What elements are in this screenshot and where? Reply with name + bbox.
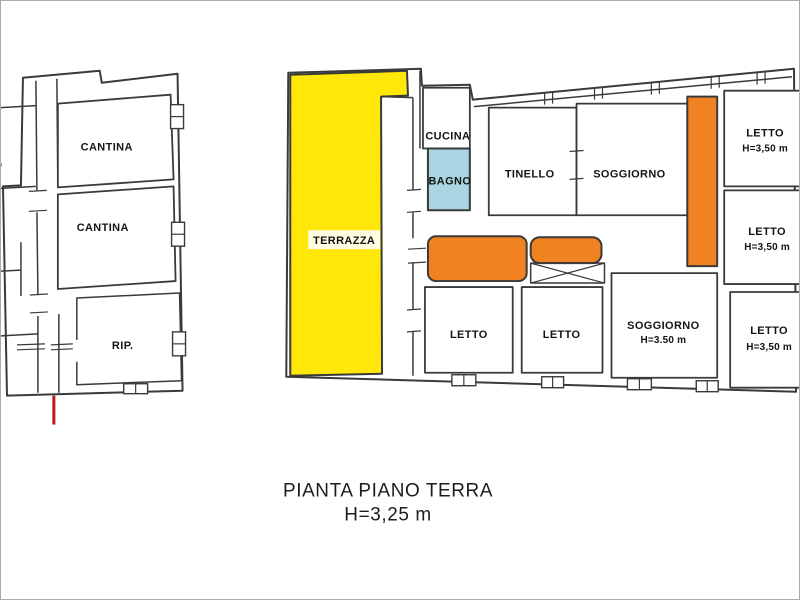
floor-plan-canvas: CANTINA CANTINA RIP. O TERRAZZA CUCINA B… [1,1,799,599]
main-building: TERRAZZA CUCINA BAGNO TINELLO SOGGIORNO … [286,69,799,392]
room-label-cucina: CUCINA [425,131,470,143]
room-label-letto-right-2: LETTO [748,226,786,238]
stair-flight [531,263,605,283]
caption-title: PIANTA PIANO TERRA [283,480,493,501]
room-terrazza [290,71,408,376]
room-note-letto-right-1: H=3,50 m [742,144,788,155]
corridor-orange-b [531,237,602,263]
room-soggiorno-top [577,104,690,216]
corridor-orange-a [428,236,527,281]
floor-plan-page: CANTINA CANTINA RIP. O TERRAZZA CUCINA B… [0,0,800,600]
annex-building: CANTINA CANTINA RIP. O [1,71,186,425]
room-label-soggiorno-bottom: SOGGIORNO [627,320,699,332]
room-note-letto-right-3: H=3,50 m [746,342,792,353]
room-label-terrazza: TERRAZZA [313,235,375,247]
room-label-soggiorno-top: SOGGIORNO [593,168,665,180]
annex-corridor-left-wall [36,81,38,393]
room-label-letto-bottom-1: LETTO [450,329,488,341]
inner-corridor-door-ticks [407,189,426,332]
room-label-rip: RIP. [112,340,134,352]
annex-window-1 [171,105,184,129]
room-label-letto-right-3: LETTO [750,325,788,337]
inner-corridor-wall [381,97,413,376]
caption: PIANTA PIANO TERRA H=3,25 m [283,480,493,525]
room-note-letto-right-2: H=3,50 m [744,242,790,253]
room-tinello [489,108,577,216]
room-note-soggiorno-bottom: H=3.50 m [641,335,687,346]
room-label-partial: O [1,159,3,171]
corridor-vertical-orange [687,97,717,266]
room-label-letto-right-1: LETTO [746,128,784,140]
room-label-tinello: TINELLO [505,168,555,180]
annex-edge-stub-walls [1,106,38,336]
annex-window-bottom [124,384,148,394]
room-label-bagno: BAGNO [428,175,471,187]
room-letto-right-3 [730,292,799,388]
room-label-cantina-1: CANTINA [81,142,133,154]
annex-window-2 [172,222,185,246]
annex-window-3 [173,332,186,356]
caption-height-note: H=3,25 m [344,504,431,525]
room-label-letto-bottom-2: LETTO [543,329,581,341]
room-label-cantina-2: CANTINA [77,222,129,234]
room-cantina-2 [58,186,176,289]
